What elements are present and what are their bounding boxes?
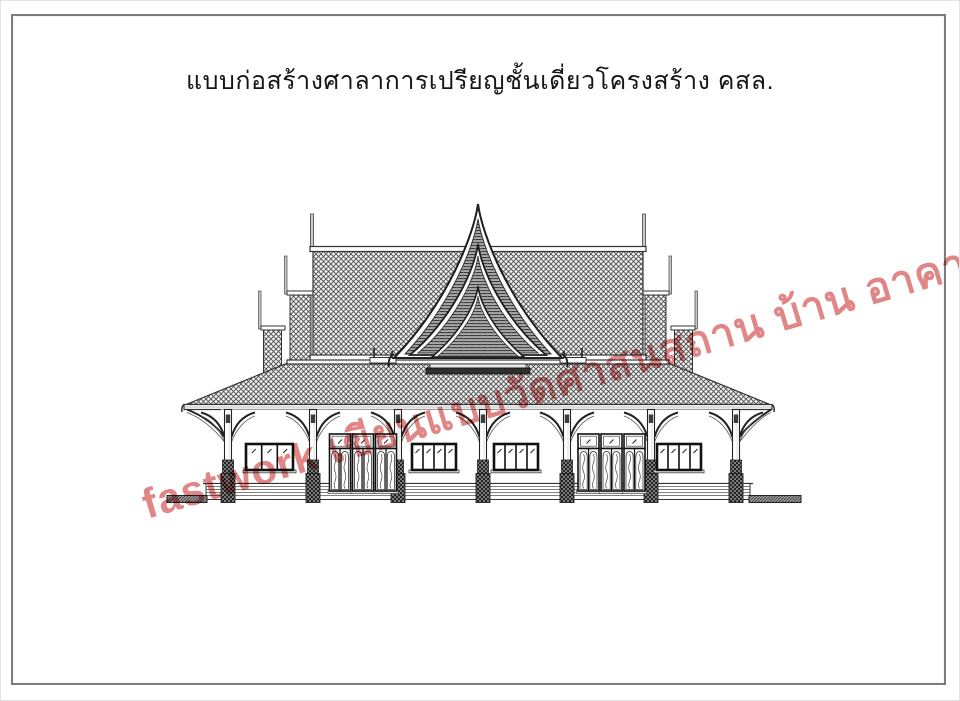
drawing-sheet: แบบก่อสร้างศาลาการเปรียญชั้นเดี่ยวโครงสร…	[0, 0, 960, 701]
left-platform	[167, 496, 207, 503]
window-3-pane	[243, 444, 296, 473]
right-platform	[749, 496, 801, 503]
roof-finial-pole	[643, 214, 646, 248]
door-group-left	[328, 434, 398, 494]
door-group-right	[577, 434, 647, 494]
window-4-pane	[491, 444, 541, 473]
building-elevation-drawing	[151, 194, 813, 512]
sheet-title: แบบก่อสร้างศาลาการเปรียญชั้นเดี่ยวโครงสร…	[1, 61, 959, 101]
window-4-pane	[654, 444, 704, 473]
window-4-pane	[409, 444, 459, 473]
roof-finial-pole	[311, 214, 314, 248]
